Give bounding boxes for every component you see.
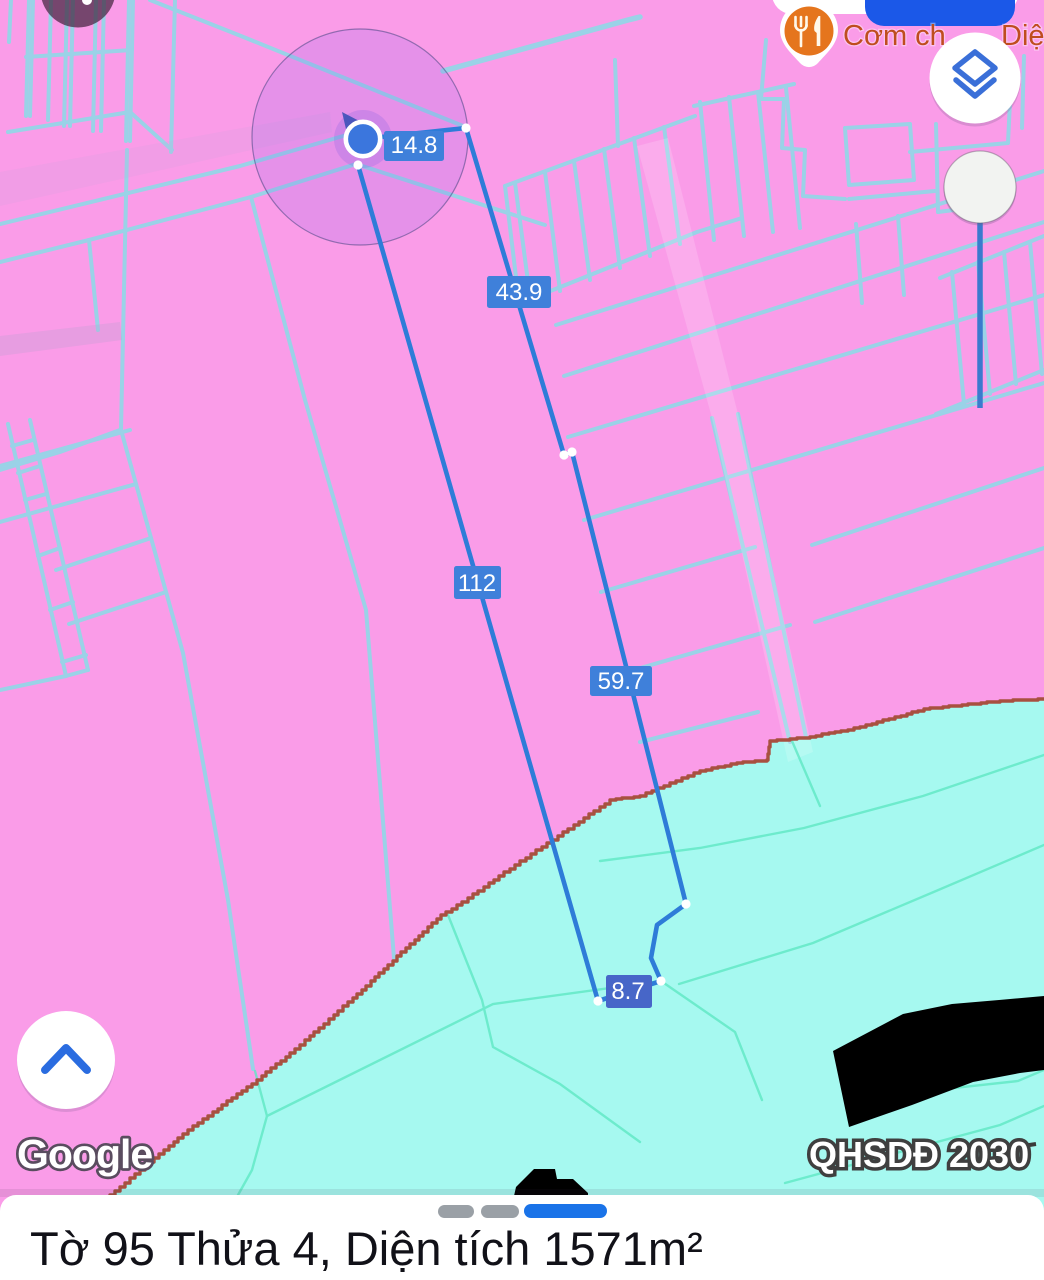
svg-text:QHSDĐ 2030: QHSDĐ 2030	[809, 1134, 1029, 1175]
svg-text:8.7: 8.7	[611, 978, 644, 1005]
svg-text:112: 112	[458, 570, 496, 597]
svg-text:14.8: 14.8	[391, 132, 438, 159]
svg-text:Google: Google	[17, 1131, 152, 1177]
svg-text:43.9: 43.9	[496, 279, 543, 306]
svg-text:Tờ 95 Thửa 4, Diện tích 1571m²: Tờ 95 Thửa 4, Diện tích 1571m²	[30, 1222, 703, 1275]
svg-text:Cơm ch: Cơm ch	[843, 20, 946, 52]
svg-text:59.7: 59.7	[598, 668, 645, 695]
